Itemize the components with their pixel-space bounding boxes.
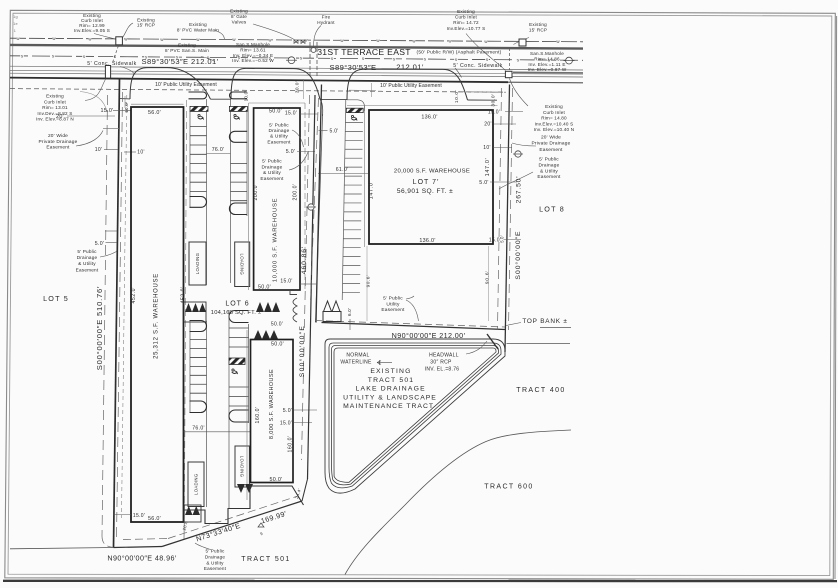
svg-text:Inv.Dev.=8.82 S: Inv.Dev.=8.82 S bbox=[37, 111, 72, 116]
svg-text:5' Public: 5' Public bbox=[77, 249, 97, 254]
svg-text:(50' Public R/W) (Asphalt Pave: (50' Public R/W) (Asphalt Pavement) bbox=[417, 49, 502, 55]
svg-text:452.0': 452.0' bbox=[131, 287, 137, 304]
svg-text:Utility: Utility bbox=[386, 301, 400, 307]
svg-text:& Utility: & Utility bbox=[206, 560, 224, 565]
svg-text:Easement: Easement bbox=[539, 147, 563, 153]
svg-text:200.0': 200.0' bbox=[253, 184, 259, 201]
svg-text:Inv. Elev.=0.87 W: Inv. Elev.=0.87 W bbox=[528, 67, 567, 72]
svg-text:8,000 S.F. WAREHOUSE: 8,000 S.F. WAREHOUSE bbox=[269, 369, 275, 439]
svg-text:10' Public Utility Easement: 10' Public Utility Easement bbox=[380, 83, 442, 89]
svg-text:INV. EL.=8.76: INV. EL.=8.76 bbox=[425, 367, 460, 373]
svg-text:136.0': 136.0' bbox=[419, 238, 435, 244]
svg-text:20': 20' bbox=[484, 122, 491, 128]
svg-text:TOP BANK ±: TOP BANK ± bbox=[522, 318, 567, 325]
svg-text:20': 20' bbox=[56, 114, 64, 120]
svg-text:10': 10' bbox=[137, 150, 144, 156]
svg-text:Inv.Elev.=9.05 S: Inv.Elev.=9.05 S bbox=[74, 28, 110, 33]
svg-text:LOT 6: LOT 6 bbox=[225, 301, 249, 308]
svg-text:30.0': 30.0' bbox=[295, 81, 301, 93]
svg-text:Easement: Easement bbox=[260, 176, 284, 182]
svg-text:Drainage: Drainage bbox=[268, 128, 289, 134]
svg-text:Private Drainage: Private Drainage bbox=[532, 141, 571, 147]
svg-text:WATERLINE: WATERLINE bbox=[340, 360, 372, 366]
svg-text:S89°30′53″E: S89°30′53″E bbox=[329, 63, 376, 72]
svg-text:San.S.Manhole: San.S.Manhole bbox=[530, 51, 564, 56]
svg-text:5.0': 5.0' bbox=[286, 149, 295, 155]
svg-text:LOT 8: LOT 8 bbox=[539, 205, 565, 214]
svg-text:8' Gate: 8' Gate bbox=[231, 14, 247, 19]
svg-text:Inv. Elev.=−0.34 E: Inv. Elev.=−0.34 E bbox=[233, 53, 273, 58]
svg-text:EXISTING: EXISTING bbox=[370, 368, 411, 375]
svg-text:Inv.Elev.=10.40 S: Inv.Elev.=10.40 S bbox=[535, 121, 574, 126]
svg-text:S00°00′00″E: S00°00′00″E bbox=[298, 325, 306, 377]
svg-text:TRACT 400: TRACT 400 bbox=[516, 387, 565, 394]
svg-text:Curb Inlet: Curb Inlet bbox=[44, 99, 66, 104]
svg-text:5.0': 5.0' bbox=[479, 180, 488, 186]
svg-text:N90°00′00″E 48.96′: N90°00′00″E 48.96′ bbox=[107, 554, 177, 563]
svg-text:6.0': 6.0' bbox=[347, 308, 352, 316]
svg-text:31ST TERRACE EAST: 31ST TERRACE EAST bbox=[317, 47, 411, 57]
svg-text:& Utility: & Utility bbox=[270, 134, 288, 140]
svg-text:LAKE DRAINAGE: LAKE DRAINAGE bbox=[356, 386, 426, 393]
svg-text:Inv. Elev.=10.40 N: Inv. Elev.=10.40 N bbox=[534, 127, 575, 132]
svg-text:56.0': 56.0' bbox=[148, 110, 161, 116]
svg-text:5' Public: 5' Public bbox=[269, 123, 289, 129]
svg-text:Inv. Elev.=1.11 E: Inv. Elev.=1.11 E bbox=[528, 62, 565, 67]
svg-text:10.0': 10.0' bbox=[244, 91, 249, 102]
svg-text:Easement: Easement bbox=[76, 267, 99, 272]
svg-text:Easement: Easement bbox=[204, 566, 227, 571]
svg-text:20,000 S.F. WAREHOUSE: 20,000 S.F. WAREHOUSE bbox=[394, 169, 470, 175]
svg-text:10': 10' bbox=[483, 145, 490, 151]
svg-text:160.0': 160.0' bbox=[288, 436, 294, 453]
svg-text:TRACT 600: TRACT 600 bbox=[484, 484, 533, 491]
svg-text:20' Wide: 20' Wide bbox=[541, 135, 561, 141]
svg-text:Existing: Existing bbox=[189, 22, 207, 27]
svg-text:5' Public: 5' Public bbox=[262, 159, 282, 165]
svg-text:Existing: Existing bbox=[457, 9, 475, 14]
svg-text:Curb Inlet: Curb Inlet bbox=[455, 15, 477, 20]
svg-text:Existing: Existing bbox=[46, 94, 64, 99]
svg-text:1g: 1g bbox=[13, 15, 18, 19]
svg-text:56.0': 56.0' bbox=[148, 516, 161, 522]
svg-text:LOADING: LOADING bbox=[240, 456, 245, 478]
svg-text:147.0': 147.0' bbox=[485, 158, 491, 177]
svg-text:460.86': 460.86' bbox=[301, 246, 308, 274]
svg-text:8' PVC San.S. Main: 8' PVC San.S. Main bbox=[165, 48, 209, 53]
svg-text:& Utility: & Utility bbox=[78, 261, 96, 266]
svg-text:Existing: Existing bbox=[545, 104, 563, 109]
svg-text:TRACT 501: TRACT 501 bbox=[241, 556, 290, 563]
svg-text:Private Drainage: Private Drainage bbox=[39, 139, 78, 145]
svg-text:160.0': 160.0' bbox=[255, 407, 261, 424]
svg-text:Easement: Easement bbox=[46, 145, 70, 151]
svg-text:50.0': 50.0' bbox=[271, 341, 284, 347]
svg-text:15.0': 15.0' bbox=[100, 108, 113, 114]
svg-text:5' Public: 5' Public bbox=[205, 549, 225, 554]
svg-text:212.01′: 212.01′ bbox=[396, 63, 424, 72]
svg-text:5' Public: 5' Public bbox=[539, 157, 559, 163]
svg-text:Inv. Elev.=8.87 N: Inv. Elev.=8.87 N bbox=[36, 117, 74, 122]
svg-text:Valves: Valves bbox=[232, 19, 247, 24]
svg-text:5' Conc. Sidewalk: 5' Conc. Sidewalk bbox=[453, 63, 503, 69]
svg-text:TRACT 501: TRACT 501 bbox=[368, 377, 415, 384]
svg-text:& Utility: & Utility bbox=[263, 170, 281, 176]
svg-text:Rim= 13.61: Rim= 13.61 bbox=[240, 47, 266, 52]
svg-text:10.0': 10.0' bbox=[454, 90, 460, 103]
svg-text:5.0': 5.0' bbox=[95, 241, 104, 247]
svg-text:147.0': 147.0' bbox=[369, 181, 375, 200]
svg-text:Curb Inlet: Curb Inlet bbox=[543, 110, 565, 115]
svg-text:LOADING: LOADING bbox=[240, 254, 245, 276]
svg-text:50.0': 50.0' bbox=[269, 477, 282, 483]
svg-text:10': 10' bbox=[95, 147, 102, 153]
svg-text:15.0': 15.0' bbox=[280, 421, 292, 427]
svg-text:104,168 SQ. FT. ±: 104,168 SQ. FT. ± bbox=[211, 310, 261, 316]
svg-text:NORMAL: NORMAL bbox=[346, 353, 369, 359]
svg-text:56,901 SQ. FT. ±: 56,901 SQ. FT. ± bbox=[397, 188, 453, 195]
svg-text:8' PVC Water Main: 8' PVC Water Main bbox=[177, 27, 219, 32]
svg-text:S00°00′00″E 510.76′: S00°00′00″E 510.76′ bbox=[95, 286, 104, 371]
svg-text:20' Wide: 20' Wide bbox=[48, 133, 68, 139]
svg-text:Easement: Easement bbox=[537, 174, 561, 180]
svg-text:MAINTENANCE TRACT: MAINTENANCE TRACT bbox=[343, 403, 434, 410]
svg-text:Existing: Existing bbox=[230, 9, 248, 14]
svg-text:10,000 S.F. WAREHOUSE: 10,000 S.F. WAREHOUSE bbox=[273, 198, 279, 283]
svg-text:Rim= 14.86: Rim= 14.86 bbox=[534, 56, 560, 61]
svg-text:Hydrant: Hydrant bbox=[317, 20, 335, 25]
svg-text:Inv. Elev.=−0.52 W: Inv. Elev.=−0.52 W bbox=[232, 58, 274, 63]
svg-text:Existing: Existing bbox=[529, 22, 547, 27]
svg-text:Existing: Existing bbox=[178, 43, 196, 48]
svg-text:N90°00′00″E 212.00′: N90°00′00″E 212.00′ bbox=[392, 331, 466, 340]
svg-text:15' RCP: 15' RCP bbox=[137, 23, 155, 28]
svg-text:76.0': 76.0' bbox=[212, 147, 225, 153]
svg-text:Inv.Elev.=10.77 S: Inv.Elev.=10.77 S bbox=[447, 26, 486, 31]
svg-text:Easement: Easement bbox=[381, 307, 405, 313]
svg-text:LOT 5: LOT 5 bbox=[43, 294, 69, 303]
svg-text:50.0': 50.0' bbox=[258, 284, 271, 290]
svg-text:15.0': 15.0' bbox=[488, 110, 500, 116]
svg-text:30″ RCP: 30″ RCP bbox=[430, 360, 452, 366]
svg-text:& Utility: & Utility bbox=[540, 168, 558, 174]
svg-text:San.S.Manhole: San.S.Manhole bbox=[236, 42, 270, 47]
svg-text:15.0': 15.0' bbox=[280, 279, 292, 285]
svg-text:S89°30′53″E 212.01′: S89°30′53″E 212.01′ bbox=[142, 57, 219, 66]
svg-text:5.0': 5.0' bbox=[329, 128, 338, 134]
svg-text:Drainage: Drainage bbox=[205, 554, 225, 559]
svg-text:61.0': 61.0' bbox=[336, 167, 349, 173]
svg-text:S00°00′00″E: S00°00′00″E bbox=[514, 230, 522, 279]
svg-text:UTILITY & LANDSCAPE: UTILITY & LANDSCAPE bbox=[343, 394, 437, 401]
svg-text:Drainage: Drainage bbox=[538, 162, 559, 168]
svg-text:1e: 1e bbox=[13, 22, 18, 26]
svg-text:267.50': 267.50' bbox=[516, 176, 523, 204]
svg-text:5.0': 5.0' bbox=[283, 408, 292, 414]
svg-text:LOADING: LOADING bbox=[194, 473, 199, 495]
svg-text:5' Public: 5' Public bbox=[383, 296, 403, 302]
svg-text:5.0': 5.0' bbox=[500, 235, 505, 242]
svg-text:15.0': 15.0' bbox=[133, 513, 145, 519]
svg-text:76.0': 76.0' bbox=[192, 426, 205, 432]
svg-text:Rim= 14.72: Rim= 14.72 bbox=[453, 20, 479, 25]
svg-text:10' Public Utility Easement: 10' Public Utility Easement bbox=[155, 82, 217, 88]
svg-text:5' Conc. Sidewalk: 5' Conc. Sidewalk bbox=[87, 61, 137, 67]
svg-text:90.6': 90.6' bbox=[366, 275, 372, 288]
svg-text:Drainage: Drainage bbox=[261, 164, 282, 170]
svg-text:50.0': 50.0' bbox=[271, 322, 283, 328]
svg-text:200.0': 200.0' bbox=[292, 184, 298, 201]
svg-text:Fire: Fire bbox=[322, 15, 331, 20]
svg-text:90.6': 90.6' bbox=[485, 270, 491, 284]
svg-text:15' RCP: 15' RCP bbox=[529, 27, 547, 32]
svg-text:30.0': 30.0' bbox=[490, 93, 496, 106]
svg-text:136.0': 136.0' bbox=[421, 115, 437, 121]
svg-text:Rim= 13.01: Rim= 13.01 bbox=[42, 105, 68, 110]
svg-text:1: 1 bbox=[14, 29, 16, 33]
svg-text:50.0': 50.0' bbox=[269, 109, 282, 115]
svg-text:Rim= 14.80: Rim= 14.80 bbox=[541, 116, 567, 121]
svg-text:HEADWALL: HEADWALL bbox=[429, 353, 459, 359]
svg-text:LOT 7′: LOT 7′ bbox=[413, 179, 440, 186]
svg-text:Drainage: Drainage bbox=[77, 255, 98, 260]
svg-text:Easement: Easement bbox=[267, 139, 291, 145]
svg-text:LOADING: LOADING bbox=[195, 252, 200, 274]
svg-text:15.0': 15.0' bbox=[285, 110, 297, 116]
svg-text:25,312 S.F. WAREHOUSE: 25,312 S.F. WAREHOUSE bbox=[154, 273, 160, 359]
